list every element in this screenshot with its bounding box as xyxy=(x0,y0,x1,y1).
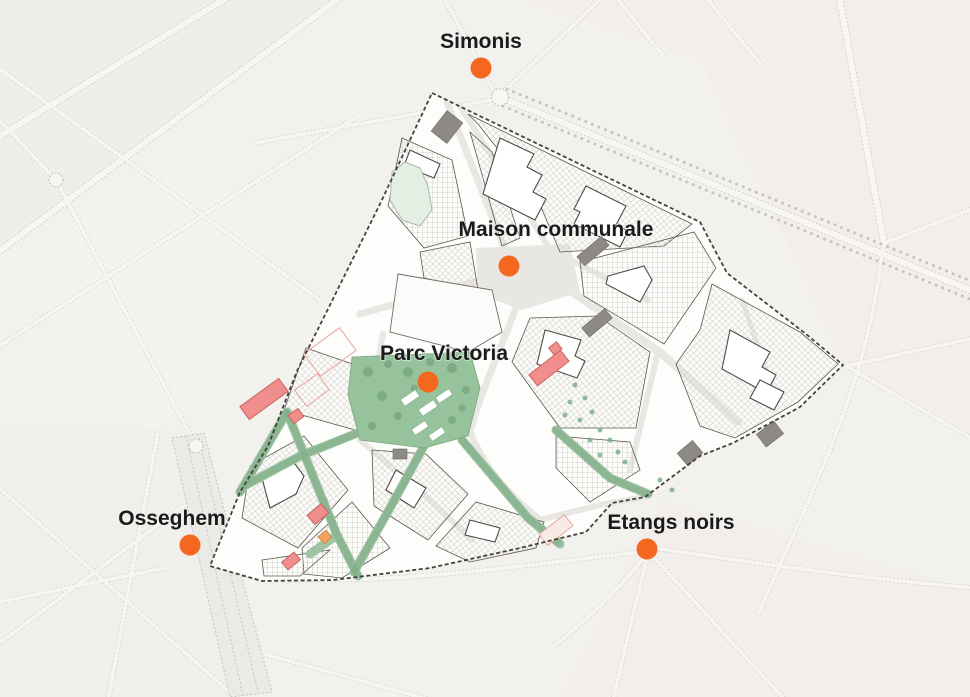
station-label-simonis: Simonis xyxy=(440,30,522,53)
station-dot xyxy=(180,535,201,556)
station-marker-maison-communale[interactable] xyxy=(499,256,520,277)
osseghem-roundabout xyxy=(189,439,203,453)
map-svg: Simonis Maison communale Parc Victoria O… xyxy=(0,0,970,697)
station-label-osseghem: Osseghem xyxy=(118,507,225,530)
map-canvas: Simonis Maison communale Parc Victoria O… xyxy=(0,0,970,697)
station-label-maison-communale: Maison communale xyxy=(459,218,654,241)
station-dot xyxy=(418,372,439,393)
west-roundabout xyxy=(49,173,63,187)
station-marker-etangs-noirs[interactable] xyxy=(637,539,658,560)
station-label-parc-victoria: Parc Victoria xyxy=(380,342,508,365)
parc-victoria-area xyxy=(348,352,480,448)
station-dot xyxy=(637,539,658,560)
simonis-roundabout xyxy=(492,89,509,106)
station-label-etangs-noirs: Etangs noirs xyxy=(607,511,734,534)
station-marker-parc-victoria[interactable] xyxy=(418,372,439,393)
station-dot xyxy=(471,58,492,79)
station-marker-osseghem[interactable] xyxy=(180,535,201,556)
station-dot xyxy=(499,256,520,277)
station-marker-simonis[interactable] xyxy=(471,58,492,79)
